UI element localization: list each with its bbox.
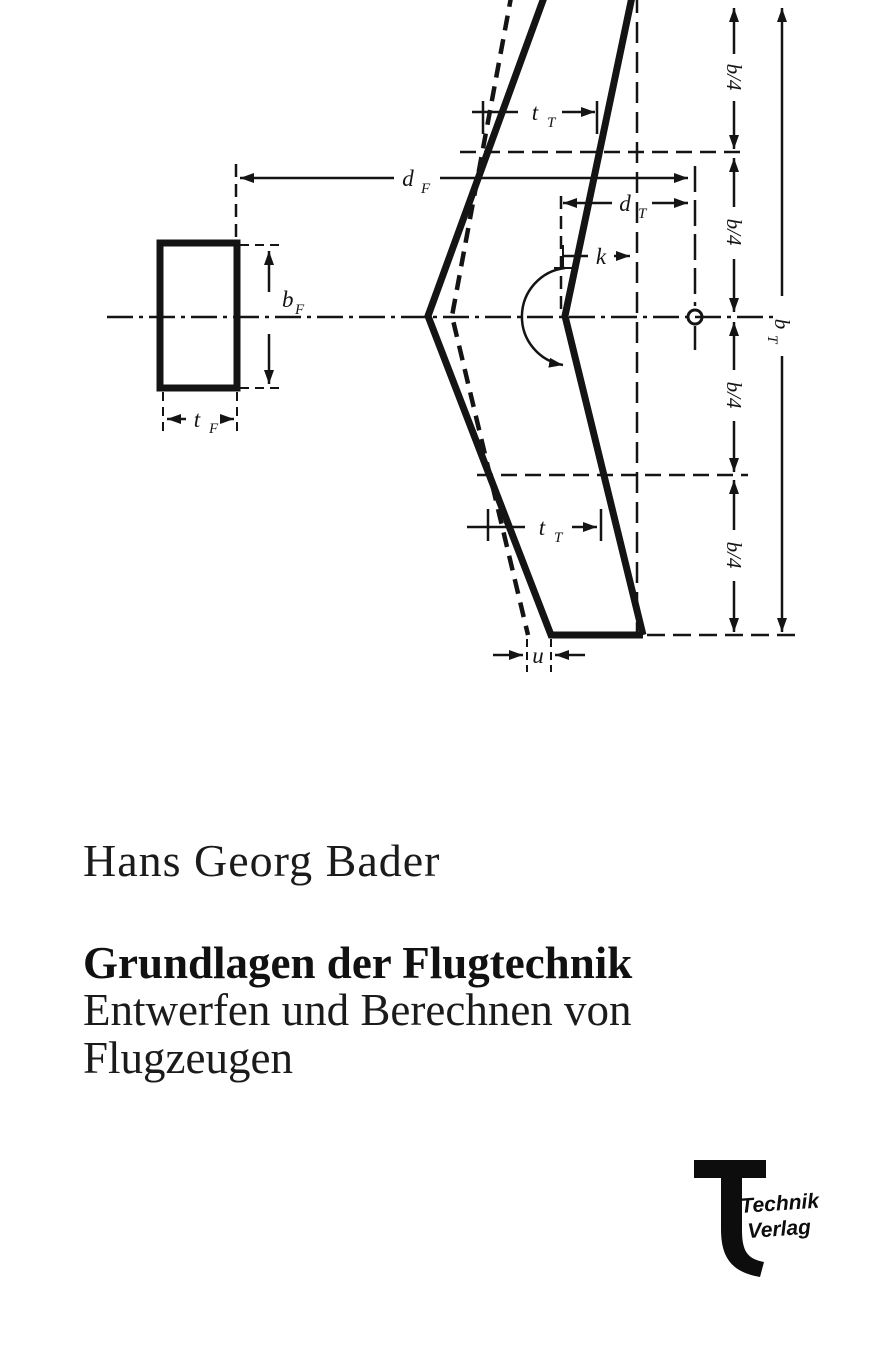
fin-cross-section-rectangle [160,243,237,388]
label-tT-upper: t [532,100,539,125]
label-b4-3: b/4 [722,382,746,409]
label-b4-2: b/4 [722,219,746,246]
label-b4-4: b/4 [722,542,746,569]
book-cover: d F d T k t T [0,0,893,1360]
publisher-line-2: Verlag [747,1216,812,1243]
subtitle-line-2: Flugzeugen [83,1034,632,1082]
book-title: Grundlagen der Flugtechnik [83,937,632,989]
label-dF: d [402,166,414,191]
author-name: Hans Georg Bader [83,834,441,887]
wing-dimension-diagram: d F d T k t T [0,0,893,700]
dimension-tT-lower: t T [467,509,601,546]
subtitle-line-1: Entwerfen und Berechnen von [83,986,632,1034]
label-k: k [596,244,607,269]
label-dT: d [619,191,631,216]
label-dT-sub: T [638,206,648,222]
label-bF-sub: F [294,302,305,318]
label-bT: b [770,319,794,330]
label-dF-sub: F [420,181,431,197]
dimension-u: u [493,639,585,672]
dimension-tF: t F [167,407,234,437]
publisher-line-1: Technik [740,1189,821,1218]
dimension-b4-chain: b/4 b/4 b/4 b/4 [722,8,746,632]
book-subtitle: Entwerfen und Berechnen von Flugzeugen [83,986,632,1082]
dimension-bT: b T [764,8,794,632]
label-u: u [532,643,544,668]
label-bT-sub: T [764,335,780,345]
label-bF: b [282,287,294,312]
label-b4-1: b/4 [722,64,746,91]
label-tT-lower: t [539,515,546,540]
dimension-dT: d T [563,191,688,222]
label-tF-sub: F [208,421,219,437]
label-tT-lower-sub: T [554,530,564,546]
label-tT-upper-sub: T [547,115,557,131]
label-tF: t [194,407,201,432]
publisher-logo: Technik Verlag [640,1130,860,1310]
